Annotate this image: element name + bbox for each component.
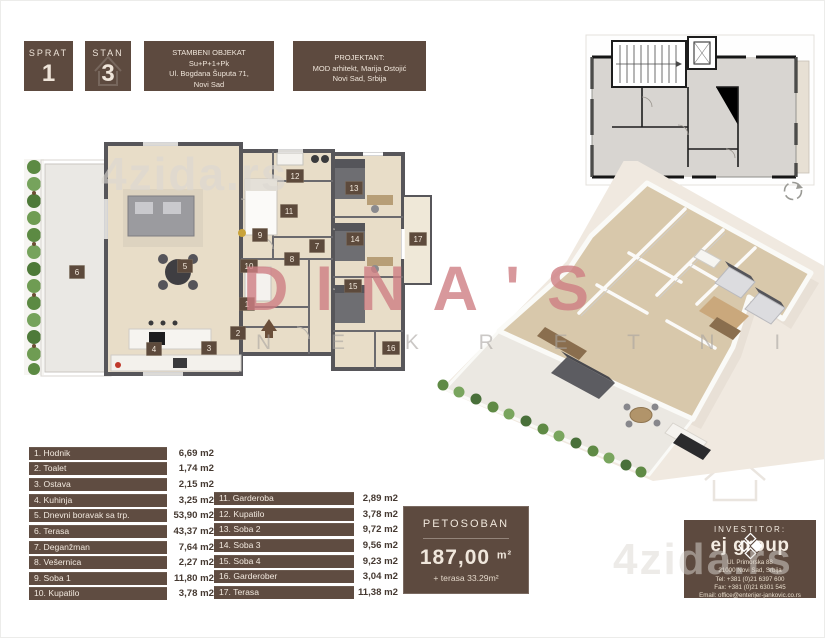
room-marker: 16 (383, 342, 400, 355)
legend-row: 15. Soba 49,23 m2 (214, 555, 400, 568)
legend-row: 11. Garderoba2,89 m2 (214, 492, 400, 505)
investor-city: 21000 Novi Sad, Srbija (684, 567, 816, 575)
room-marker: 8 (285, 253, 300, 266)
house-outline-icon (85, 41, 131, 91)
legend-row: 12. Kupatilo3,78 m2 (214, 508, 400, 521)
room-area: 3,04 m2 (354, 570, 400, 583)
room-area: 9,56 m2 (354, 539, 400, 552)
svg-text:14: 14 (351, 235, 360, 244)
room-label: 17. Terasa (214, 586, 354, 599)
stan-box: STAN 3 (85, 41, 131, 91)
svg-text:7: 7 (315, 242, 320, 251)
room-marker: 15 (345, 280, 362, 293)
sprat-box: SPRAT 1 (24, 41, 73, 91)
room-area: 3,78 m2 (354, 508, 400, 521)
room-label: 12. Kupatilo (214, 508, 354, 521)
key-plan-balcony (796, 61, 809, 173)
room-marker: 17 (410, 233, 427, 246)
room-label: 3. Ostava (29, 478, 167, 491)
room-label: 1. Hodnik (29, 447, 167, 460)
room-area: 43,37 m2 (167, 525, 216, 538)
room-label: 8. Vešernica (29, 556, 167, 569)
sprat-label: SPRAT (24, 48, 73, 58)
building-info-line: Su+P+1+Pk (144, 59, 274, 70)
legend-row: 1. Hodnik6,69 m2 (29, 447, 216, 460)
legend-row: 14. Soba 39,56 m2 (214, 539, 400, 552)
investor-fax: Fax: +381 (0)21 6301 545 (684, 584, 816, 592)
room-area: 7,64 m2 (167, 541, 216, 554)
legend-row: 8. Vešernica2,27 m2 (29, 556, 216, 569)
legend-row: 4. Kuhinja3,25 m2 (29, 494, 216, 507)
svg-text:17: 17 (414, 235, 423, 244)
svg-text:13: 13 (350, 184, 359, 193)
elevator-icon (688, 37, 716, 69)
architect-info-line: MOD arhitekt, Marija Ostojić (293, 64, 426, 75)
svg-text:3: 3 (207, 344, 212, 353)
svg-text:16: 16 (387, 344, 396, 353)
room-label: 4. Kuhinja (29, 494, 167, 507)
room-area: 11,80 m2 (167, 572, 216, 585)
svg-text:5: 5 (183, 262, 188, 271)
room-area: 2,27 m2 (167, 556, 216, 569)
ej-group-logo-icon (738, 532, 762, 560)
room-label: 13. Soba 2 (214, 523, 354, 536)
room-area: 9,23 m2 (354, 555, 400, 568)
architect-info-box: PROJEKTANT: MOD arhitekt, Marija Ostojić… (293, 41, 426, 91)
room-area: 6,69 m2 (167, 447, 216, 460)
legend-row: 10. Kupatilo3,78 m2 (29, 587, 216, 600)
flyer-page: SPRAT 1 STAN 3 STAMBENI OBJEKAT Su+P+1+P… (0, 0, 825, 638)
room-marker: 6 (70, 266, 85, 279)
floor-plan-3d (429, 161, 825, 513)
legend-row: 6. Terasa43,37 m2 (29, 525, 216, 538)
room-marker: 3 (202, 342, 217, 355)
room-label: 11. Garderoba (214, 492, 354, 505)
stove-dot (115, 362, 121, 368)
room-area: 3,25 m2 (167, 494, 216, 507)
svg-text:11: 11 (285, 207, 294, 216)
room-marker: 2 (231, 327, 246, 340)
svg-text:2: 2 (236, 329, 241, 338)
room-area: 2,89 m2 (354, 492, 400, 505)
room-label: 5. Dnevni boravak sa trp. (29, 509, 167, 522)
architect-info-line: Novi Sad, Srbija (293, 74, 426, 85)
room-area: 11,38 m2 (354, 586, 400, 599)
svg-text:6: 6 (75, 268, 80, 277)
terrace-note: + terasa 33.29m² (403, 573, 529, 583)
room-marker: 14 (347, 233, 364, 246)
apartment-summary-box: PETOSOBAN 187,00 m² + terasa 33.29m² (403, 506, 529, 594)
legend-row: 13. Soba 29,72 m2 (214, 523, 400, 536)
room-marker: 4 (147, 343, 162, 356)
room-area: 2,15 m2 (167, 478, 216, 491)
room-area: 1,74 m2 (167, 462, 216, 475)
floor-plan-2d: 1 2 3 4 5 6 7 8 9 10 11 12 13 14 15 16 1… (23, 139, 435, 384)
svg-text:15: 15 (349, 282, 358, 291)
legend-row: 5. Dnevni boravak sa trp.53,90 m2 (29, 509, 216, 522)
investor-box: INVESTITOR: ej group Ul. Primorska 88 21… (684, 520, 816, 598)
room-marker: 5 (178, 260, 193, 273)
sprat-value: 1 (24, 60, 73, 88)
room-label: 2. Toalet (29, 462, 167, 475)
building-info-line: STAMBENI OBJEKAT (144, 48, 274, 59)
room-marker: 7 (310, 240, 325, 253)
room-label: 16. Garderober (214, 570, 354, 583)
svg-text:4: 4 (152, 345, 157, 354)
room-marker: 1 (240, 298, 255, 311)
legend-row: 16. Garderober3,04 m2 (214, 570, 400, 583)
svg-text:9: 9 (258, 231, 263, 240)
room-label: 7. Deganžman (29, 541, 167, 554)
room-label: 9. Soba 1 (29, 572, 167, 585)
room-area: 3,78 m2 (167, 587, 216, 600)
room-marker: 10 (241, 260, 258, 273)
building-info-box: STAMBENI OBJEKAT Su+P+1+Pk Ul. Bogdana Š… (144, 41, 274, 91)
legend-row: 7. Deganžman7,64 m2 (29, 541, 216, 554)
room-marker: 13 (346, 182, 363, 195)
room-label: 14. Soba 3 (214, 539, 354, 552)
svg-text:1: 1 (245, 300, 250, 309)
svg-text:12: 12 (291, 172, 300, 181)
svg-text:10: 10 (245, 262, 254, 271)
legend-row: 17. Terasa11,38 m2 (214, 586, 400, 599)
total-area: 187,00 m² (403, 546, 529, 570)
room-label: 6. Terasa (29, 525, 167, 538)
stairs-icon (612, 41, 686, 87)
apartment-type: PETOSOBAN (403, 518, 529, 530)
investor-tel: Tel: +381 (0)21 6397 600 (684, 576, 816, 584)
room-marker: 12 (287, 170, 304, 183)
legend-row: 2. Toalet1,74 m2 (29, 462, 216, 475)
room-marker: 9 (253, 229, 268, 242)
room-label: 10. Kupatilo (29, 587, 167, 600)
compass-icon (785, 183, 804, 200)
room-label: 15. Soba 4 (214, 555, 354, 568)
room-marker: 11 (281, 205, 298, 218)
investor-address: Ul. Primorska 88 (684, 559, 816, 567)
legend-row: 3. Ostava2,15 m2 (29, 478, 216, 491)
building-info-line: Novi Sad (144, 80, 274, 91)
investor-email: Email: office@enterijer-jankovic.co.rs (684, 592, 816, 600)
room-area: 9,72 m2 (354, 523, 400, 536)
divider (423, 538, 509, 539)
svg-text:8: 8 (290, 255, 295, 264)
room-area: 53,90 m2 (167, 509, 216, 522)
architect-info-line: PROJEKTANT: (293, 53, 426, 64)
building-info-line: Ul. Bogdana Šuputa 71, (144, 69, 274, 80)
legend-row: 9. Soba 111,80 m2 (29, 572, 216, 585)
